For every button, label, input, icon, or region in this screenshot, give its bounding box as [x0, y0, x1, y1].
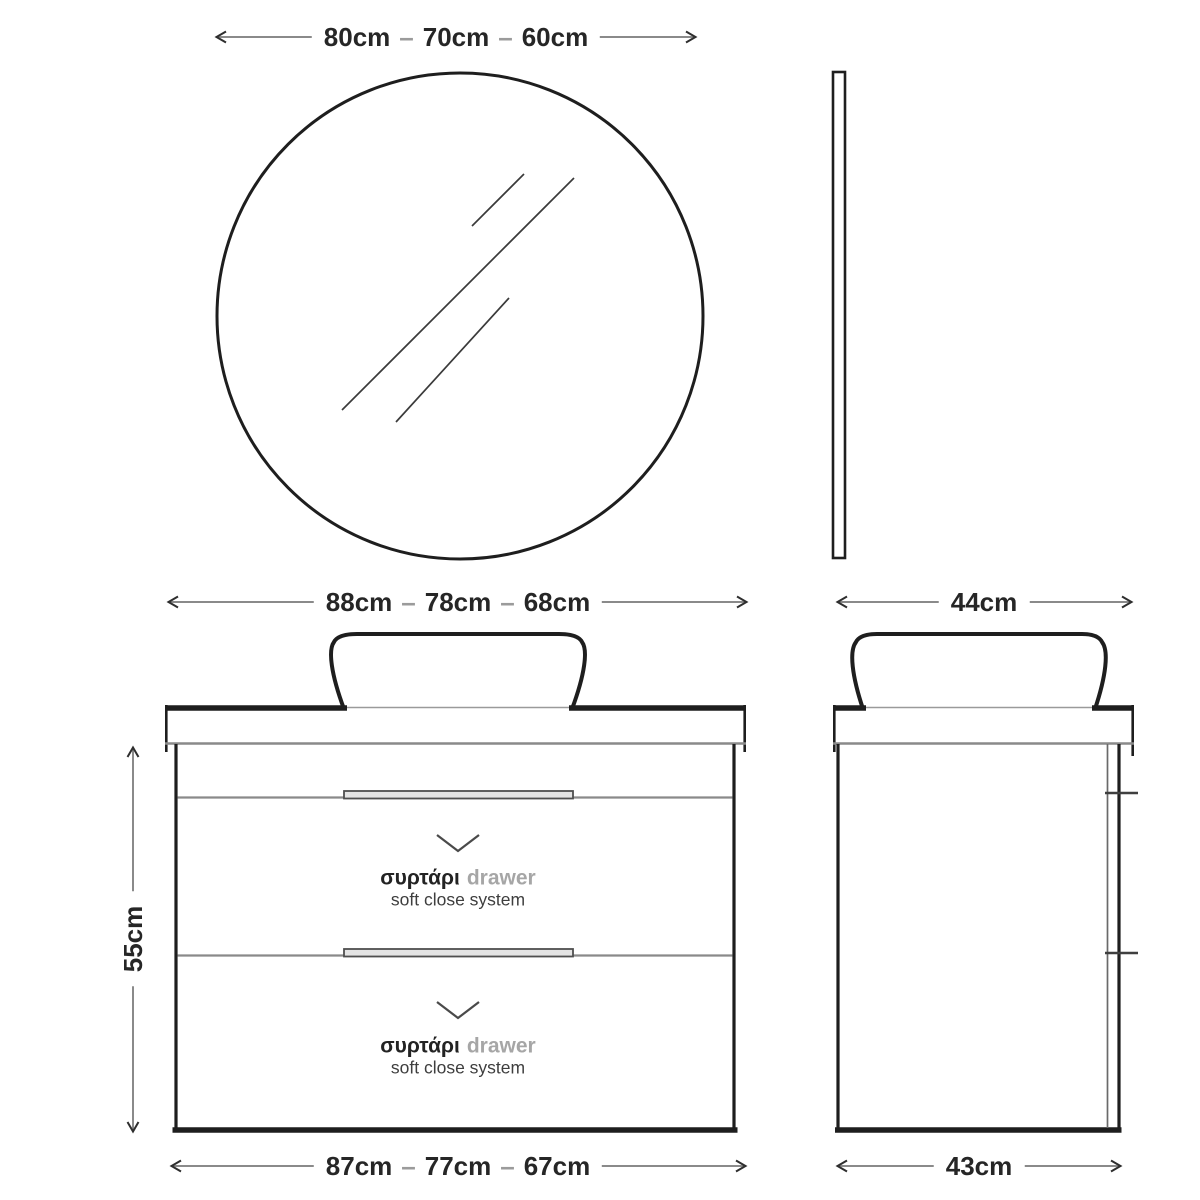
dimension-label-vanity-height: 55cm [118, 892, 148, 987]
dim-value: 67cm [524, 1151, 591, 1181]
drawer-handle-2 [344, 949, 573, 957]
dim-value: 80cm [324, 22, 391, 52]
dim-value: 60cm [522, 22, 589, 52]
dimension-label-side-top-depth: 44cm [939, 587, 1030, 617]
dim-value: 43cm [946, 1151, 1013, 1181]
dim-separator: – [399, 22, 413, 52]
chevron-down-icon [437, 1002, 479, 1018]
drawer-1-label: συρτάριdrawer [380, 868, 535, 889]
dim-separator: – [401, 1151, 415, 1181]
dim-value: 68cm [524, 587, 591, 617]
drawer-label-english: drawer [467, 867, 536, 890]
drawer-2-subtitle: soft close system [391, 1059, 525, 1077]
dimension-label-vanity-bottom-width: 87cm–77cm–67cm [314, 1151, 602, 1181]
dim-separator: – [498, 22, 512, 52]
dim-separator: – [401, 587, 415, 617]
drawer-handle-1 [344, 791, 573, 799]
mirror-side-view [833, 72, 845, 558]
dim-value: 87cm [326, 1151, 393, 1181]
drawer-label-english: drawer [467, 1035, 536, 1058]
dim-value: 77cm [425, 1151, 492, 1181]
vanity-side-view [833, 634, 1138, 1130]
drawer-1-subtitle: soft close system [391, 891, 525, 909]
drawer-2-label: συρτάριdrawer [380, 1036, 535, 1057]
dimension-label-vanity-top-width: 88cm–78cm–68cm [314, 587, 602, 617]
chevron-down-icon [437, 835, 479, 851]
dim-value: 70cm [423, 22, 490, 52]
dim-value: 44cm [951, 587, 1018, 617]
cabinet-side-edges [838, 744, 1119, 1129]
drawer-label-greek: συρτάρι [380, 1035, 460, 1058]
dimension-label-side-bottom-depth: 43cm [934, 1151, 1025, 1181]
technical-drawing-canvas: 80cm–70cm–60cm 88cm–78cm–68cm 44cm 87cm–… [0, 0, 1200, 1200]
dimension-label-mirror-width: 80cm–70cm–60cm [312, 22, 600, 52]
basin-side [852, 634, 1106, 709]
countertop-side-body [833, 705, 1134, 743]
dim-value: 78cm [425, 587, 492, 617]
dim-value: 55cm [118, 906, 148, 973]
mirror-outline [217, 73, 703, 559]
drawer-label-greek: συρτάρι [380, 867, 460, 890]
mirror-front-view [217, 73, 703, 559]
dim-separator: – [500, 1151, 514, 1181]
dim-separator: – [500, 587, 514, 617]
basin-front [331, 634, 585, 709]
dim-value: 88cm [326, 587, 393, 617]
